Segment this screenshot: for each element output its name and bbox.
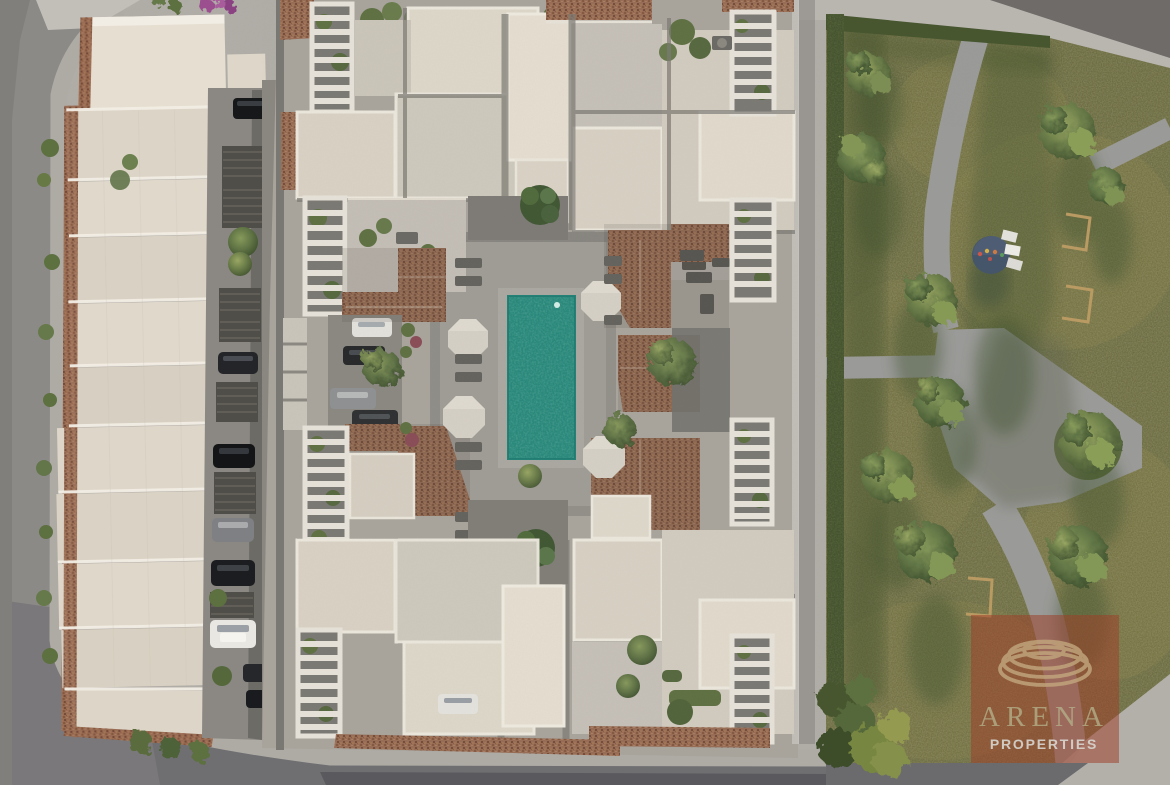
svg-text:PROPERTIES: PROPERTIES xyxy=(990,736,1098,752)
svg-text:ARENA: ARENA xyxy=(979,701,1109,733)
